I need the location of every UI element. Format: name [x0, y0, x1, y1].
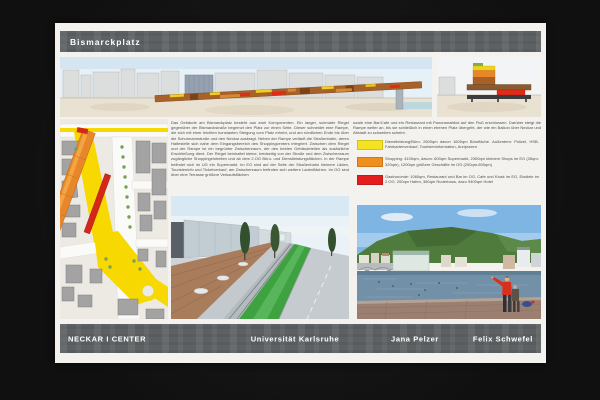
elevation-drawing: [60, 57, 432, 117]
legend-label: Shopping: 4100qm, davon: 600qm Supermark…: [385, 156, 539, 166]
legend-swatch-orange: [357, 157, 383, 167]
author-felix-schwefel: Felix Schwefel: [473, 334, 533, 343]
university-name: Universität Karlsruhe: [240, 334, 350, 343]
legend-label: Dienstleistung/Büro: 2600qm davon 1600qm…: [385, 139, 539, 149]
footer-bar: NECKAR I CENTER Universität Karlsruhe Ja…: [60, 324, 541, 353]
legend-swatch-red: [357, 175, 383, 185]
description-text-left: Das Gebäude am Bismarckplatz besteht aus…: [171, 120, 349, 180]
program-legend: Dienstleistung/Büro: 2600qm davon 1600qm…: [353, 139, 541, 191]
legend-swatch-yellow: [357, 140, 383, 150]
legend-item-shopping: Shopping: 4100qm, davon: 600qm Supermark…: [353, 156, 541, 166]
neckar-photo-svg: [357, 205, 541, 319]
dark-backdrop: { "header": { "title": "Bismarckplatz" }…: [0, 0, 600, 400]
project-name: NECKAR I CENTER: [68, 334, 146, 343]
site-plan-svg: [60, 119, 168, 319]
ramp-rendering: [171, 196, 349, 319]
elevation-drawing-svg: [60, 57, 432, 117]
section-drawing-svg: [437, 57, 541, 117]
presentation-board: Bismarckplatz: [55, 23, 546, 363]
page-title: Bismarckplatz: [70, 37, 141, 47]
header-bar: Bismarckplatz: [60, 31, 541, 52]
legend-item-dienstleistung: Dienstleistung/Büro: 2600qm davon 1600qm…: [353, 139, 541, 149]
description-text-right: sowie eine Bar/Cafe und ein Restaurant m…: [353, 120, 541, 138]
legend-label: Gastronomie: 1060qm, Restaurant und Bar …: [385, 174, 539, 184]
legend-item-gastronomie: Gastronomie: 1060qm, Restaurant und Bar …: [353, 174, 541, 184]
section-drawing: [437, 57, 541, 117]
ramp-rendering-svg: [171, 196, 349, 319]
neckar-photo: [357, 205, 541, 319]
site-plan-map: [60, 119, 168, 319]
author-jana-pelzer: Jana Pelzer: [370, 334, 460, 343]
